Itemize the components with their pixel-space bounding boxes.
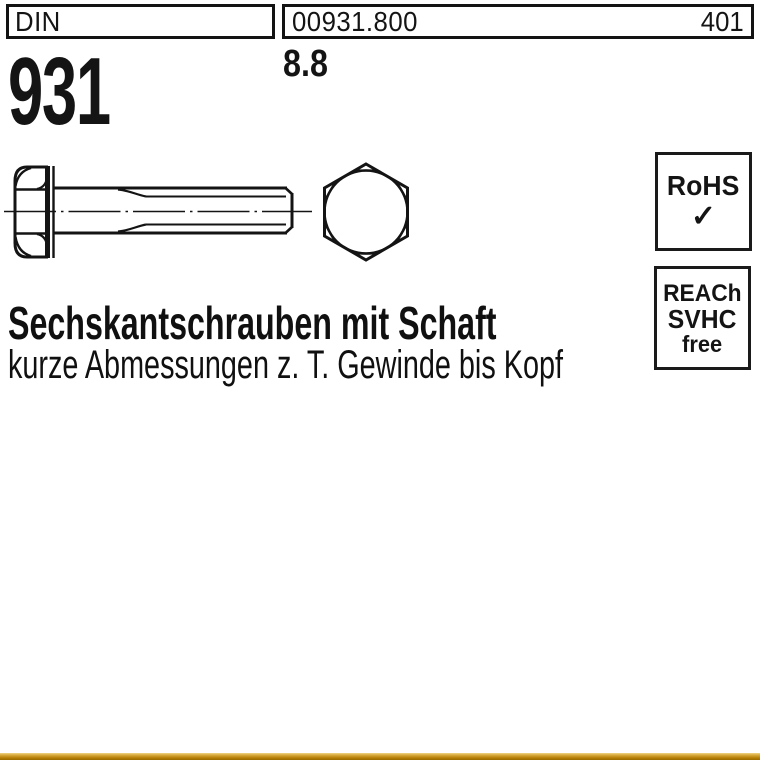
hex-head-front-view	[325, 164, 408, 260]
svhc-label: SVHC	[668, 306, 737, 332]
strength-class: 8.8	[283, 45, 328, 83]
technical-drawing	[0, 150, 430, 275]
reach-label: REACh	[663, 281, 742, 306]
article-number: 00931.800	[292, 6, 418, 38]
thread-runout-top	[118, 190, 146, 197]
din-label: DIN	[15, 6, 61, 38]
page-subtitle: kurze Abmessungen z. T. Gewinde bis Kopf	[8, 344, 563, 386]
article-box: 00931.800 401	[282, 4, 754, 39]
bolt-shank-and-thread	[54, 188, 292, 233]
page-number: 401	[701, 6, 744, 38]
footer-bar	[0, 753, 760, 760]
rohs-label: RoHS	[667, 171, 739, 201]
standard-number: 931	[8, 44, 110, 140]
reach-badge: REACh SVHC free	[654, 266, 751, 370]
product-sheet: DIN 00931.800 401 931 8.8	[0, 0, 760, 760]
free-label: free	[682, 332, 722, 356]
rohs-badge: RoHS ✓	[655, 152, 752, 251]
din-box: DIN	[6, 4, 275, 39]
thread-runout-bottom	[118, 225, 146, 232]
chamfer-circle	[325, 171, 408, 254]
check-icon: ✓	[691, 201, 716, 233]
page-title: Sechskantschrauben mit Schaft	[8, 300, 497, 346]
